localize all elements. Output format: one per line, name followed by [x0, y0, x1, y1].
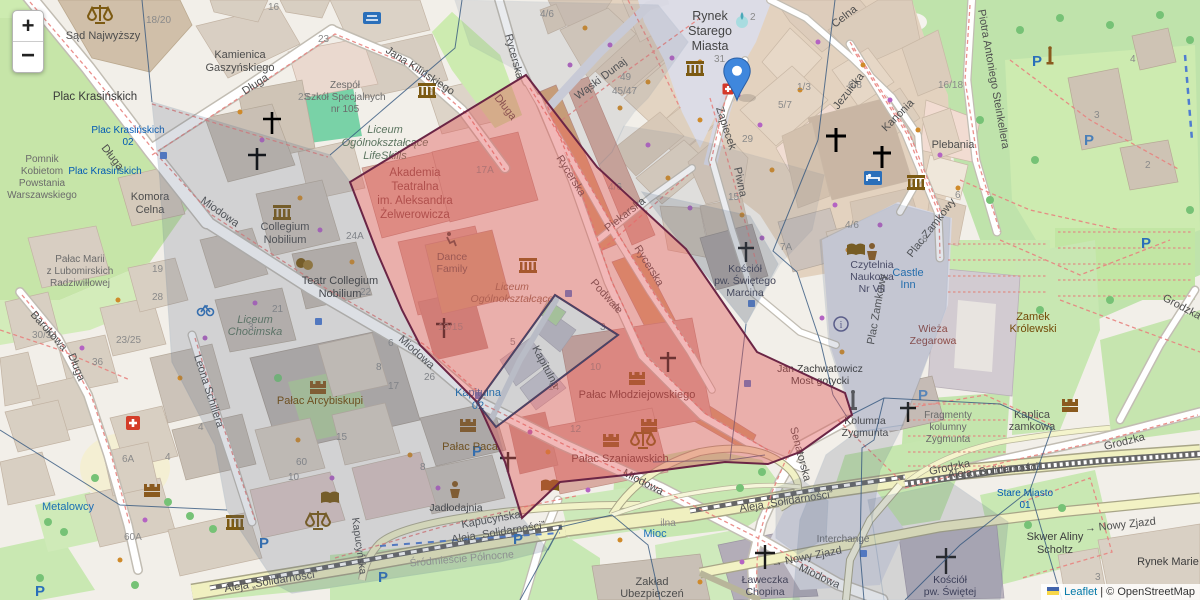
- svg-text:01: 01: [1019, 500, 1031, 511]
- svg-text:5/7: 5/7: [778, 100, 792, 111]
- svg-text:Fragmenty: Fragmenty: [924, 410, 972, 421]
- svg-text:Celna: Celna: [136, 204, 166, 216]
- svg-text:Zespół: Zespół: [330, 80, 361, 91]
- svg-text:Starego: Starego: [688, 24, 732, 38]
- svg-text:23/25: 23/25: [116, 335, 141, 346]
- svg-text:Ubezpieczeń: Ubezpieczeń: [620, 588, 684, 600]
- svg-text:P: P: [35, 583, 45, 600]
- svg-text:Pałac Marii: Pałac Marii: [55, 254, 104, 265]
- svg-text:16/18: 16/18: [938, 80, 963, 91]
- svg-text:Sąd Najwyższy: Sąd Najwyższy: [66, 30, 141, 42]
- svg-text:2: 2: [1145, 160, 1151, 171]
- svg-text:31: 31: [714, 54, 726, 65]
- svg-text:Kamienica: Kamienica: [214, 49, 266, 61]
- svg-text:3: 3: [1095, 572, 1101, 583]
- svg-text:Szkół Specjalnych: Szkół Specjalnych: [304, 92, 385, 103]
- svg-text:Skwer Aliny: Skwer Aliny: [1027, 531, 1084, 543]
- svg-text:Plac Krasińskich: Plac Krasińskich: [68, 166, 141, 177]
- svg-text:2: 2: [750, 12, 756, 23]
- svg-text:Zamek: Zamek: [1016, 311, 1050, 323]
- svg-text:Miasta: Miasta: [692, 39, 729, 53]
- svg-text:Kobietom: Kobietom: [21, 166, 63, 177]
- svg-text:Mioc: Mioc: [643, 528, 667, 540]
- svg-text:4: 4: [1130, 54, 1136, 65]
- svg-text:ilna: ilna: [660, 518, 676, 529]
- svg-text:23: 23: [318, 34, 330, 45]
- svg-text:P: P: [1032, 53, 1042, 70]
- svg-text:02: 02: [122, 137, 134, 148]
- svg-text:P: P: [1141, 235, 1151, 252]
- svg-text:1/3: 1/3: [797, 82, 811, 93]
- svg-text:Chopina: Chopina: [745, 586, 784, 598]
- svg-text:3: 3: [1094, 110, 1100, 121]
- svg-text:23: 23: [298, 92, 310, 103]
- svg-text:P: P: [1084, 132, 1094, 149]
- svg-text:60A: 60A: [124, 532, 142, 543]
- svg-text:Plebania: Plebania: [932, 139, 976, 151]
- svg-text:28: 28: [152, 292, 164, 303]
- svg-text:29: 29: [742, 134, 754, 145]
- svg-text:Scholtz: Scholtz: [1037, 544, 1073, 556]
- svg-text:nr 105: nr 105: [331, 104, 360, 115]
- svg-text:Zygmunta: Zygmunta: [926, 434, 971, 445]
- svg-text:Radziwiłłowej: Radziwiłłowej: [50, 278, 110, 289]
- svg-text:4: 4: [198, 422, 204, 433]
- svg-text:Powstania: Powstania: [19, 178, 66, 189]
- svg-text:Metalowcy: Metalowcy: [42, 501, 94, 513]
- svg-text:19: 19: [152, 264, 164, 275]
- svg-text:P: P: [918, 387, 928, 404]
- svg-text:4: 4: [165, 452, 171, 463]
- svg-text:6A: 6A: [122, 454, 135, 465]
- svg-text:Królewski: Królewski: [1009, 323, 1056, 335]
- svg-text:Rynek: Rynek: [692, 9, 728, 23]
- svg-text:36: 36: [92, 357, 104, 368]
- svg-text:Ławeczka: Ławeczka: [742, 574, 789, 586]
- svg-text:kolumny: kolumny: [929, 422, 966, 433]
- svg-text:Pomnik: Pomnik: [25, 154, 59, 165]
- svg-text:6: 6: [955, 190, 961, 201]
- svg-text:z Lubomirskich: z Lubomirskich: [47, 266, 114, 277]
- svg-text:Rynek Marie: Rynek Marie: [1137, 556, 1199, 568]
- svg-text:18/20: 18/20: [146, 15, 171, 26]
- svg-text:Liceum: Liceum: [367, 124, 402, 136]
- svg-text:Zakład: Zakład: [635, 576, 668, 588]
- svg-text:Plac Krasińskich: Plac Krasińskich: [91, 125, 164, 136]
- svg-text:Plac Krasińskich: Plac Krasińskich: [53, 91, 137, 103]
- svg-text:16: 16: [268, 2, 280, 13]
- svg-text:Warszawskiego: Warszawskiego: [7, 190, 77, 201]
